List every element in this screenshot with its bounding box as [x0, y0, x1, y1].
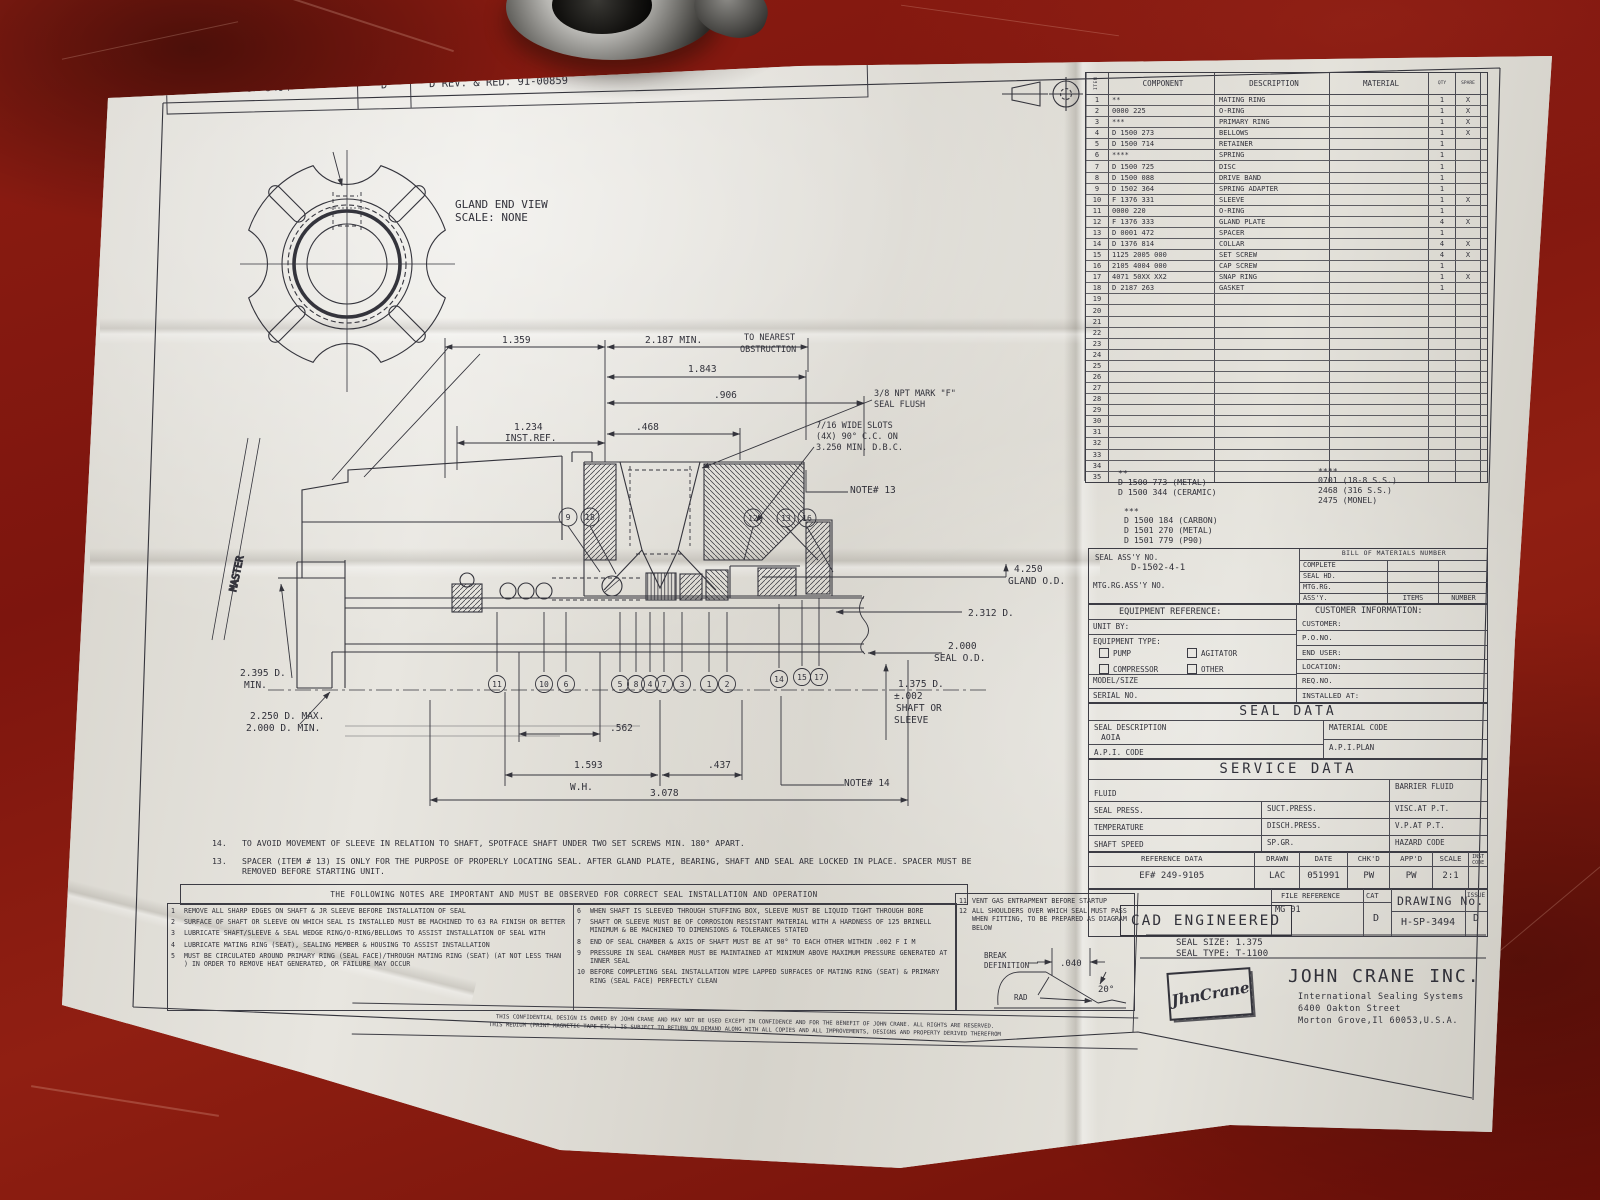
cell-spare: X — [1456, 95, 1481, 105]
cell-description: SLEEVE — [1215, 195, 1330, 205]
checkbox-icon — [1187, 648, 1197, 658]
cell-component — [1109, 394, 1215, 404]
cell-qty: 4 — [1429, 217, 1456, 227]
parts-row: 5D 1500 714RETAINER1 — [1086, 139, 1487, 150]
ref-header: CHK'D — [1348, 852, 1390, 866]
cell-qty: 1 — [1429, 150, 1456, 160]
cell-material — [1330, 394, 1429, 404]
svg-text:15: 15 — [797, 673, 807, 682]
gland-view-scale: SCALE: NONE — [455, 211, 528, 224]
parts-row: 30 — [1086, 416, 1487, 427]
photo-of-engineering-drawing: { "revision": {"number":"H-SP-3494","rev… — [0, 0, 1600, 1200]
cell-component — [1109, 294, 1215, 304]
cell-item: 27 — [1086, 383, 1109, 393]
notes-banner: THE FOLLOWING NOTES ARE IMPORTANT AND MU… — [180, 884, 968, 905]
cell-component — [1109, 438, 1215, 448]
cell-material — [1330, 328, 1429, 338]
company-line3: Morton Grove,Il 60053,U.S.A. — [1298, 1016, 1458, 1026]
cell-spare — [1456, 450, 1481, 460]
cell-qty — [1429, 372, 1456, 382]
svg-text:SEAL FLUSH: SEAL FLUSH — [874, 400, 925, 410]
parts-row: 27 — [1086, 383, 1487, 394]
cell-spare: X — [1456, 217, 1481, 227]
cell-material — [1330, 184, 1429, 194]
svg-text:.437: .437 — [708, 760, 731, 771]
cell-qty: 1 — [1429, 95, 1456, 105]
checkbox-pump: PUMP — [1099, 648, 1187, 658]
cell-item: 28 — [1086, 394, 1109, 404]
service-data-block: SERVICE DATA FLUID BARRIER FLUID SEAL PR… — [1088, 758, 1488, 853]
parts-row: 18D 2187 263GASKET1 — [1086, 283, 1487, 294]
cell-description: O-RING — [1215, 206, 1330, 216]
cell-component — [1109, 372, 1215, 382]
cell-description: O-RING — [1215, 106, 1330, 116]
svg-text:.906: .906 — [714, 390, 737, 401]
cell-qty: 1 — [1429, 106, 1456, 116]
customer-rows: CUSTOMER:P.O.NO.END USER:LOCATION:REQ.NO… — [1297, 617, 1487, 703]
cell-spare: X — [1456, 239, 1481, 249]
cell-spare — [1456, 294, 1481, 304]
cell-description: BELLOWS — [1215, 128, 1330, 138]
cell-component: F 1376 331 — [1109, 195, 1215, 205]
cell-item: 22 — [1086, 328, 1109, 338]
cell-description: GLAND PLATE — [1215, 217, 1330, 227]
ref-header: DRAWN — [1255, 852, 1299, 866]
svg-text:2: 2 — [725, 680, 730, 689]
cell-component: D 0001 472 — [1109, 228, 1215, 238]
cell-item: 9 — [1086, 184, 1109, 194]
notes-columns: 1REMOVE ALL SHARP EDGES ON SHAFT & JR SL… — [167, 903, 957, 1011]
cell-spare — [1456, 461, 1481, 471]
john-crane-logo: JhnCrane — [1166, 967, 1253, 1021]
note-item: 10BEFORE COMPLETING SEAL INSTALLATION WI… — [577, 968, 952, 984]
cell-item: 32 — [1086, 438, 1109, 448]
col-description: DESCRIPTION — [1215, 73, 1330, 94]
parts-row: 19 — [1086, 294, 1487, 305]
cell-spare: X — [1456, 250, 1481, 260]
assembly-bom-block: SEAL ASS'Y NO. D-1502-4-1 MTG.RG.ASS'Y N… — [1088, 548, 1488, 605]
parts-row: 31 — [1086, 427, 1487, 438]
cell-spare — [1456, 383, 1481, 393]
svg-text:1: 1 — [707, 680, 712, 689]
customer-row: REQ.NO. — [1297, 674, 1487, 688]
cell-qty: 1 — [1429, 117, 1456, 127]
cell-material — [1330, 139, 1429, 149]
col-item: ITEM — [1094, 77, 1099, 90]
svg-text:1.359: 1.359 — [502, 335, 531, 346]
cell-component: D 1500 273 — [1109, 128, 1215, 138]
parts-row: 162105 4004 000CAP SCREW1 — [1086, 261, 1487, 272]
svg-text:3.250 MIN. D.B.C.: 3.250 MIN. D.B.C. — [816, 443, 903, 453]
cell-description — [1215, 317, 1330, 327]
cell-description: COLLAR — [1215, 239, 1330, 249]
cell-component: 0000 220 — [1109, 206, 1215, 216]
cell-material — [1330, 161, 1429, 171]
cell-spare — [1456, 394, 1481, 404]
cell-item: 12 — [1086, 217, 1109, 227]
svg-text:2.312 D.: 2.312 D. — [968, 608, 1014, 619]
cell-material — [1330, 117, 1429, 127]
checkbox-compressor: COMPRESSOR — [1099, 664, 1187, 674]
cell-description — [1215, 383, 1330, 393]
cell-item: 16 — [1086, 261, 1109, 271]
cell-description — [1215, 339, 1330, 349]
cell-spare: X — [1456, 195, 1481, 205]
col-spare: SPARE — [1456, 73, 1481, 94]
cell-description — [1215, 405, 1330, 415]
equipment-type-checkboxes: PUMPAGITATORCOMPRESSOROTHER — [1099, 648, 1289, 674]
cell-spare — [1456, 305, 1481, 315]
cell-spare — [1456, 184, 1481, 194]
cell-component — [1109, 416, 1215, 426]
cell-material — [1330, 305, 1429, 315]
bom-title: BILL OF MATERIALS NUMBER — [1300, 549, 1488, 561]
col-component: COMPONENT — [1109, 73, 1215, 94]
master-label: MASTER — [228, 554, 246, 593]
customer-information: CUSTOMER INFORMATION: CUSTOMER:P.O.NO.EN… — [1297, 604, 1487, 703]
equipment-customer-block: EQUIPMENT REFERENCE: UNIT BY: EQUIPMENT … — [1088, 603, 1488, 704]
cat-label: CAT — [1366, 892, 1379, 900]
company-line2: 6400 Oakton Street — [1298, 1004, 1401, 1014]
svg-text:5: 5 — [618, 680, 623, 689]
cell-spare — [1456, 206, 1481, 216]
parts-row: 21 — [1086, 317, 1487, 328]
cell-qty — [1429, 450, 1456, 460]
parts-row: 32 — [1086, 438, 1487, 449]
cell-description: GASKET — [1215, 283, 1330, 293]
cell-spare — [1456, 350, 1481, 360]
svg-text:.468: .468 — [636, 422, 659, 433]
svg-text:7: 7 — [662, 680, 667, 689]
cell-material — [1330, 195, 1429, 205]
cell-item: 29 — [1086, 405, 1109, 415]
cell-component — [1109, 405, 1215, 415]
note-item: 14.TO AVOID MOVEMENT OF SLEEVE IN RELATI… — [212, 838, 982, 849]
cell-spare — [1456, 161, 1481, 171]
cat-value: D — [1373, 913, 1379, 924]
svg-text:2.395 D.: 2.395 D. — [240, 668, 286, 679]
file-reference-label: FILE REFERENCE — [1281, 892, 1340, 900]
cell-item: 1 — [1086, 95, 1109, 105]
cell-material — [1330, 217, 1429, 227]
cell-qty: 1 — [1429, 228, 1456, 238]
note-item: 13.SPACER (ITEM # 13) IS ONLY FOR THE PU… — [212, 856, 982, 877]
ref-header: DATE — [1300, 852, 1348, 866]
parts-row: 28 — [1086, 394, 1487, 405]
note-item: 7SHAFT OR SLEEVE MUST BE OF CORROSION RE… — [577, 918, 952, 934]
upper-notes: 14.TO AVOID MOVEMENT OF SLEEVE IN RELATI… — [212, 838, 982, 884]
parts-table-header: ITEM COMPONENT DESCRIPTION MATERIAL QTY … — [1086, 73, 1487, 95]
cell-item: 20 — [1086, 305, 1109, 315]
parts-row: 20000 225O-RING1X — [1086, 106, 1487, 117]
notes-col1: 1REMOVE ALL SHARP EDGES ON SHAFT & JR SL… — [168, 904, 574, 1010]
cell-description — [1215, 350, 1330, 360]
cell-spare — [1456, 139, 1481, 149]
cell-item: 35 — [1086, 472, 1109, 482]
cell-item: 23 — [1086, 339, 1109, 349]
svg-text:.562: .562 — [610, 723, 633, 734]
note-item: 4LUBRICATE MATING RING (SEAT), SEALING M… — [171, 941, 569, 949]
cell-qty — [1429, 350, 1456, 360]
note-item: 5MUST BE CIRCULATED AROUND PRIMARY RING … — [171, 952, 569, 968]
ref-value: 2:1 — [1433, 867, 1469, 889]
cell-spare: X — [1456, 117, 1481, 127]
cell-material — [1330, 173, 1429, 183]
reference-data-table: REFERENCE DATADRAWNDATECHK'DAPP'DSCALEIN… — [1088, 851, 1488, 890]
cell-qty: 1 — [1429, 272, 1456, 282]
cell-material — [1330, 272, 1429, 282]
svg-text:6: 6 — [564, 680, 569, 689]
issue-value: D — [1473, 913, 1479, 924]
cell-component: D 1500 725 — [1109, 161, 1215, 171]
cell-component — [1109, 305, 1215, 315]
parts-row: 23 — [1086, 339, 1487, 350]
cell-item: 2 — [1086, 106, 1109, 116]
cell-item: 18 — [1086, 283, 1109, 293]
ref-value: PW — [1348, 867, 1390, 889]
cell-spare — [1456, 416, 1481, 426]
cell-material — [1330, 250, 1429, 260]
cell-description: RETAINER — [1215, 139, 1330, 149]
cell-material — [1330, 106, 1429, 116]
parts-row: 13D 0001 472SPACER1 — [1086, 228, 1487, 239]
svg-text:3: 3 — [680, 680, 685, 689]
cell-qty — [1429, 317, 1456, 327]
svg-text:SEAL O.D.: SEAL O.D. — [934, 653, 985, 664]
cell-description: DISC — [1215, 161, 1330, 171]
ref-value — [1469, 867, 1487, 889]
svg-text:7/16 WIDE SLOTS: 7/16 WIDE SLOTS — [816, 421, 893, 431]
cell-description — [1215, 305, 1330, 315]
parts-row: 110000 220O-RING1 — [1086, 206, 1487, 217]
seal-type: SEAL TYPE: T-1100 — [1176, 949, 1268, 959]
parts-row: 33 — [1086, 450, 1487, 461]
parts-row: 20 — [1086, 305, 1487, 316]
svg-text:2.187 MIN.: 2.187 MIN. — [645, 335, 702, 346]
cell-qty — [1429, 328, 1456, 338]
cell-item: 3 — [1086, 117, 1109, 127]
cell-item: 33 — [1086, 450, 1109, 460]
cell-spare — [1456, 372, 1481, 382]
col-qty: QTY — [1429, 73, 1456, 94]
cell-item: 7 — [1086, 161, 1109, 171]
cell-spare — [1456, 427, 1481, 437]
cell-material — [1330, 150, 1429, 160]
svg-text:14: 14 — [774, 675, 784, 684]
cell-material — [1330, 228, 1429, 238]
cell-item: 26 — [1086, 372, 1109, 382]
note-item: 11VENT GAS ENTRAPMENT BEFORE STARTUP — [959, 897, 1131, 905]
cell-description — [1215, 461, 1330, 471]
parts-row: 14D 1376 814COLLAR4X — [1086, 239, 1487, 250]
note-item: 2SURFACE OF SHAFT OR SLEEVE ON WHICH SEA… — [171, 918, 569, 926]
cell-qty: 1 — [1429, 128, 1456, 138]
note-item: 1REMOVE ALL SHARP EDGES ON SHAFT & JR SL… — [171, 907, 569, 915]
cell-qty: 4 — [1429, 239, 1456, 249]
cell-qty — [1429, 394, 1456, 404]
cell-qty — [1429, 427, 1456, 437]
svg-text:4: 4 — [648, 680, 653, 689]
svg-text:16: 16 — [802, 514, 812, 523]
note-item: 12ALL SHOULDERS OVER WHICH SEAL MUST PAS… — [959, 907, 1131, 932]
cell-description: SPACER — [1215, 228, 1330, 238]
parts-row: 12F 1376 333GLAND PLATE4X — [1086, 217, 1487, 228]
cell-spare — [1456, 173, 1481, 183]
svg-text:3/8 NPT MARK "F": 3/8 NPT MARK "F" — [874, 389, 956, 399]
cell-material — [1330, 383, 1429, 393]
cell-qty: 1 — [1429, 161, 1456, 171]
parts-row: 6****SPRING1 — [1086, 150, 1487, 161]
svg-text:1.843: 1.843 — [688, 364, 717, 375]
cell-description — [1215, 416, 1330, 426]
ref-value: PW — [1390, 867, 1432, 889]
seal-assy-number: D-1502-4-1 — [1131, 563, 1185, 573]
svg-text:SHAFT OR: SHAFT OR — [896, 703, 942, 714]
gland-end-view — [240, 150, 455, 392]
cell-item: 34 — [1086, 461, 1109, 471]
cell-component — [1109, 339, 1215, 349]
note-item: 9PRESSURE IN SEAL CHAMBER MUST BE MAINTA… — [577, 949, 952, 965]
cell-component: 1125 2005 000 — [1109, 250, 1215, 260]
cell-material — [1330, 128, 1429, 138]
checkbox-icon — [1099, 648, 1109, 658]
cad-engineered-stamp: CAD ENGINEERED — [1120, 905, 1292, 936]
cell-material — [1330, 239, 1429, 249]
cell-item: 14 — [1086, 239, 1109, 249]
seal-size: SEAL SIZE: 1.375 — [1176, 938, 1263, 948]
svg-text:NOTE# 14: NOTE# 14 — [844, 778, 890, 789]
master-fold-lines: MASTER — [212, 438, 260, 640]
cell-item: 24 — [1086, 350, 1109, 360]
cell-qty: 1 — [1429, 139, 1456, 149]
customer-row: INSTALLED AT: — [1297, 689, 1487, 703]
cell-material — [1330, 339, 1429, 349]
svg-text:3.078: 3.078 — [650, 788, 679, 799]
svg-text:13: 13 — [781, 514, 791, 523]
cell-description — [1215, 394, 1330, 404]
cell-component: 0000 225 — [1109, 106, 1215, 116]
cell-material — [1330, 95, 1429, 105]
cell-item: 13 — [1086, 228, 1109, 238]
cell-material — [1330, 405, 1429, 415]
bom-row: MTG.RG. — [1300, 583, 1488, 594]
cell-material — [1330, 427, 1429, 437]
cell-item: 15 — [1086, 250, 1109, 260]
cell-qty — [1429, 416, 1456, 426]
svg-text:MIN.: MIN. — [244, 680, 267, 691]
ref-header: REFERENCE DATA — [1089, 852, 1255, 866]
cell-description — [1215, 372, 1330, 382]
cell-material — [1330, 317, 1429, 327]
svg-text:2.000 D. MIN.: 2.000 D. MIN. — [246, 723, 320, 734]
cell-item: 10 — [1086, 195, 1109, 205]
svg-text:17: 17 — [814, 673, 824, 682]
cell-component — [1109, 427, 1215, 437]
parts-row: 3***PRIMARY RING1X — [1086, 117, 1487, 128]
parts-row: 22 — [1086, 328, 1487, 339]
cell-spare — [1456, 317, 1481, 327]
cell-spare — [1456, 405, 1481, 415]
cell-description: PRIMARY RING — [1215, 117, 1330, 127]
cell-description: MATING RING — [1215, 95, 1330, 105]
parts-row: 151125 2005 000SET SCREW4X — [1086, 250, 1487, 261]
company-line1: International Sealing Systems — [1298, 992, 1464, 1002]
ref-value: 051991 — [1300, 867, 1348, 889]
svg-text:1.375 D.: 1.375 D. — [898, 679, 944, 690]
col-material: MATERIAL — [1330, 73, 1429, 94]
svg-text:GLAND O.D.: GLAND O.D. — [1008, 576, 1065, 587]
cell-spare — [1456, 283, 1481, 293]
cell-qty — [1429, 294, 1456, 304]
parts-rows: 1**MATING RING1X20000 225O-RING1X3***PRI… — [1086, 95, 1487, 482]
cell-material — [1330, 361, 1429, 371]
notes-col3: 11VENT GAS ENTRAPMENT BEFORE STARTUP12AL… — [955, 893, 1135, 1011]
svg-text:10: 10 — [539, 680, 549, 689]
seal-data-title: SEAL DATA — [1089, 704, 1487, 719]
cell-description: SPRING ADAPTER — [1215, 184, 1330, 194]
svg-text:SLEEVE: SLEEVE — [894, 715, 929, 726]
cell-material — [1330, 350, 1429, 360]
equipment-reference: EQUIPMENT REFERENCE: UNIT BY: EQUIPMENT … — [1089, 604, 1296, 703]
cell-component: ** — [1109, 95, 1215, 105]
cell-item: 11 — [1086, 206, 1109, 216]
cell-component — [1109, 317, 1215, 327]
cell-qty: 1 — [1429, 206, 1456, 216]
cell-component: F 1376 333 — [1109, 217, 1215, 227]
company-name: JOHN CRANE INC. — [1288, 966, 1481, 987]
customer-row: END USER: — [1297, 646, 1487, 660]
parts-list-table: ITEM COMPONENT DESCRIPTION MATERIAL QTY … — [1085, 72, 1488, 483]
cell-qty — [1429, 438, 1456, 448]
cell-component — [1109, 450, 1215, 460]
checkbox-other: OTHER — [1187, 664, 1285, 674]
seal-data-block: SEAL DATA SEAL DESCRIPTION AOIA A.P.I. C… — [1088, 702, 1488, 760]
cell-component: **** — [1109, 150, 1215, 160]
cell-component: D 1500 088 — [1109, 173, 1215, 183]
cell-description — [1215, 427, 1330, 437]
cell-description: SPRING — [1215, 150, 1330, 160]
parts-row: 29 — [1086, 405, 1487, 416]
cell-spare: X — [1456, 128, 1481, 138]
cell-item: 8 — [1086, 173, 1109, 183]
cell-component: 2105 4004 000 — [1109, 261, 1215, 271]
cell-component — [1109, 361, 1215, 371]
cell-material — [1330, 438, 1429, 448]
svg-text:INST.REF.: INST.REF. — [505, 433, 556, 444]
cell-qty — [1429, 383, 1456, 393]
cell-spare — [1456, 438, 1481, 448]
cell-spare: X — [1456, 106, 1481, 116]
third-angle-projection-icon — [1002, 77, 1083, 111]
parts-row: 24 — [1086, 350, 1487, 361]
ref-header: INST CODE — [1469, 852, 1487, 866]
cell-material — [1330, 461, 1429, 471]
parts-row: 34 — [1086, 461, 1487, 472]
cell-item: 4 — [1086, 128, 1109, 138]
cell-qty: 1 — [1429, 283, 1456, 293]
cell-spare — [1456, 361, 1481, 371]
parts-row: 1**MATING RING1X — [1086, 95, 1487, 106]
gland-view-title: GLAND END VIEW — [455, 198, 548, 211]
cell-item: 17 — [1086, 272, 1109, 282]
seal-description-value: AOIA — [1101, 733, 1120, 742]
cell-description — [1215, 328, 1330, 338]
parts-row: 9D 1502 364SPRING ADAPTER1 — [1086, 184, 1487, 195]
cell-description: CAP SCREW — [1215, 261, 1330, 271]
svg-text:2.000: 2.000 — [948, 641, 977, 652]
cell-item: 30 — [1086, 416, 1109, 426]
seal-assy-label: SEAL ASS'Y NO. — [1095, 553, 1158, 562]
